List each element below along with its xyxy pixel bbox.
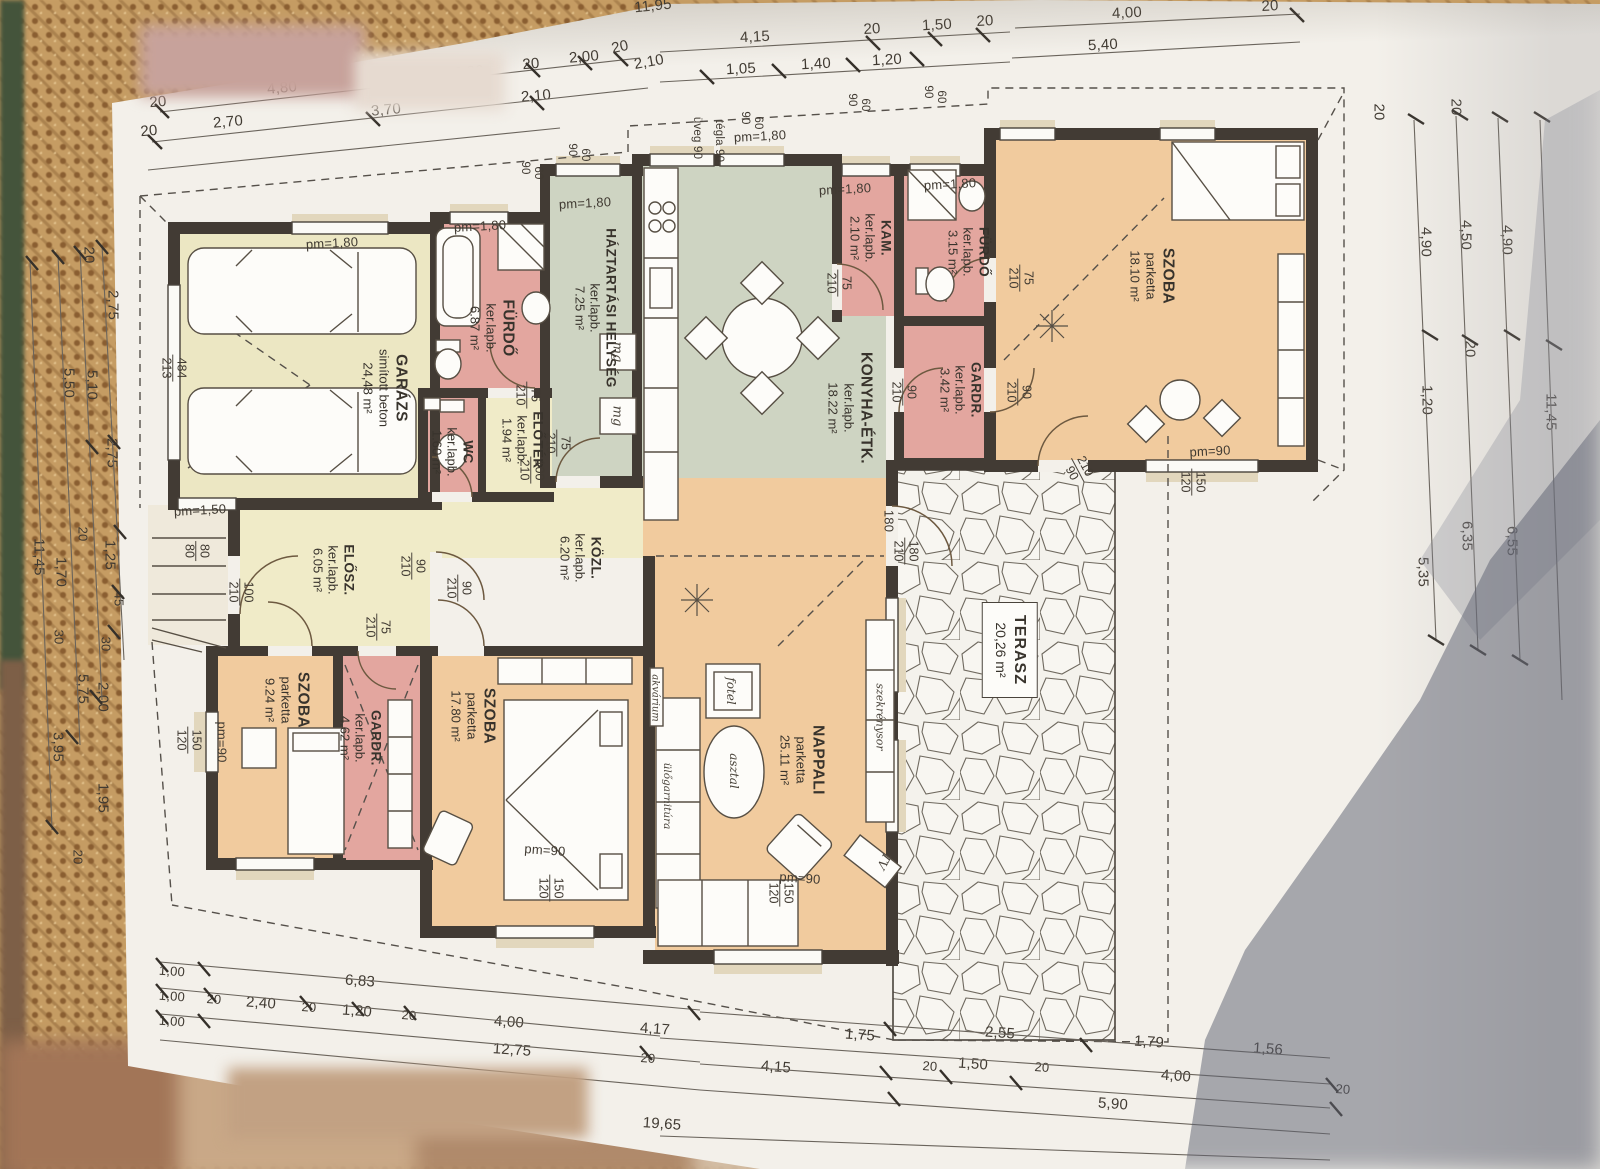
dim-label: 6,83 — [344, 971, 375, 990]
dim-label: 20 — [81, 246, 98, 263]
door-size-label: 75210 — [363, 614, 392, 641]
furniture-label-akvarium: akvárium — [650, 674, 661, 722]
dim-label: 1,50 — [957, 1054, 988, 1073]
dim-label: 20 — [863, 20, 881, 38]
dim-label: 4,90 — [1418, 227, 1435, 257]
dim-label: 2,00 — [95, 682, 112, 712]
dim-label: 11,45 — [1543, 393, 1560, 430]
dim-label: 30 — [52, 630, 67, 645]
redacted-area — [355, 52, 505, 110]
dim-label: 20 — [71, 850, 86, 865]
room-label-terasz: TERASZ 20,26 m² — [982, 602, 1038, 698]
redacted-area — [140, 25, 365, 97]
dim-label: 4,17 — [639, 1019, 670, 1038]
dim-label: 180 — [882, 510, 897, 532]
parapet-label: pm=90 — [1189, 442, 1231, 459]
dim-label: 1,56 — [1252, 1039, 1283, 1058]
dim-label: 2,70 — [212, 112, 243, 132]
dim-label: 1,50 — [922, 16, 953, 35]
door-size-label: 90210 — [889, 379, 918, 406]
dim-label: 1,00 — [158, 963, 185, 980]
door-size-label: 100210 — [517, 457, 546, 484]
dim-label: 20 — [922, 1058, 938, 1074]
door-size-label: 75210 — [543, 430, 572, 457]
dim-label: 11,45 — [31, 538, 48, 575]
dim-label: 4,15 — [740, 28, 771, 47]
window-size-label: 150120 — [766, 880, 795, 907]
sill-dim-label: 90 — [739, 111, 751, 124]
window-size-label: 150120 — [174, 727, 203, 754]
step-size-label: 8080 — [182, 541, 211, 561]
room-label-furdo2: FÜRDŐ ker.lapb. 3.15 m² — [945, 227, 992, 277]
window-size-label: 150120 — [1178, 469, 1207, 496]
door-size-label: 90210 — [444, 575, 473, 602]
appliance-label-mg: mg — [610, 406, 625, 427]
parapet-label: pm=1,50 — [173, 501, 226, 519]
wardrobe-icon — [498, 658, 632, 684]
sill-dim-label: 60 — [532, 166, 544, 179]
room-label-elosz: ELŐSZ. ker.lapb. 6.05 m² — [310, 544, 357, 595]
door-size-label: 90210 — [398, 553, 427, 580]
glazing-label: tégla 90 — [713, 120, 725, 163]
door-size-label: 90210 — [1004, 379, 1033, 406]
sill-dim-label: 90 — [519, 161, 531, 174]
sill-dim-label: 90 — [566, 143, 578, 156]
dim-label: 5,75 — [75, 674, 92, 704]
desk-icon — [242, 728, 276, 768]
door-size-label: 100210 — [226, 579, 255, 606]
furniture-label-ulogarnitura: ülőgarnitúra — [661, 763, 673, 830]
dim-label: 1,20 — [872, 51, 903, 70]
sill-dim-label: 90 — [922, 85, 934, 98]
room-label-garazs: GARÁZS simított beton 24,48 m² — [361, 349, 410, 427]
dim-label: 1,00 — [158, 988, 185, 1005]
dim-label: 2,40 — [245, 993, 276, 1012]
appliance-label-mg: mg — [610, 342, 625, 363]
sill-dim-label: 60 — [579, 148, 591, 161]
room-label-konyha: KONYHA-ÉTK. ker.lapb. 18.22 m² — [826, 352, 875, 464]
dim-label: 2,55 — [984, 1023, 1015, 1042]
parapet-label: pm=90 — [524, 841, 566, 859]
sill-dim-label: 60 — [859, 98, 871, 111]
dim-label: 12,75 — [492, 1040, 532, 1060]
dim-label: 20 — [1448, 98, 1465, 115]
dim-label: 4,00 — [1112, 4, 1143, 23]
parapet-label: pm=1,80 — [923, 175, 976, 193]
kitchen-counter — [644, 168, 678, 520]
dim-label: 20 — [522, 55, 541, 73]
dim-label: 5,40 — [1088, 36, 1119, 55]
room-label-szoba9: SZOBA parketta 9.24 m² — [263, 672, 312, 728]
sink-icon — [522, 292, 550, 324]
dim-label: 30 — [99, 637, 114, 652]
dim-label: 20 — [610, 37, 630, 57]
door-size-label: 75210 — [513, 382, 542, 409]
dim-label: 6,55 — [1504, 526, 1521, 556]
dim-label: 20 — [76, 527, 91, 542]
dim-label: 20 — [1261, 0, 1279, 15]
car-icon — [188, 248, 416, 334]
dim-label: 1,20 — [1419, 385, 1436, 415]
window-size-label: 150120 — [536, 875, 565, 902]
room-label-szoba17: SZOBA parketta 17.80 m² — [449, 688, 498, 744]
plant-icon — [1036, 310, 1068, 342]
dim-label: 20 — [1462, 340, 1479, 357]
dim-label: 2,75 — [105, 290, 122, 320]
door-size-label: 180210 — [891, 538, 920, 565]
bed-icon — [288, 728, 344, 854]
garage-door-size-label: 484213 — [159, 355, 188, 382]
furniture-label-fotel: fotel — [724, 677, 738, 704]
room-label-nappali: NAPPALI parketta 25.11 m² — [778, 725, 827, 795]
floorplan-photo: GARÁZS simított beton 24,48 m² FÜRDŐ ker… — [0, 0, 1600, 1169]
dim-label: 1,70 — [53, 557, 70, 587]
dim-label: 20 — [640, 1050, 656, 1066]
wardrobe-icon — [1278, 254, 1304, 446]
dim-label: 2,75 — [104, 438, 121, 468]
dim-label: 20 — [401, 1007, 417, 1023]
dim-label: 20 — [1335, 1081, 1351, 1097]
room-label-gardr3: GARDR. ker.lapb. 3.42 m² — [937, 362, 984, 418]
terrace-paving — [893, 470, 1115, 1040]
room-label-kozl: KÖZL. ker.lapb. 6.20 m² — [557, 533, 604, 582]
wardrobe-icon — [388, 700, 412, 848]
parapet-label: pm=1,80 — [453, 217, 506, 235]
dim-label: 1,05 — [726, 60, 757, 79]
parapet-label: pm=90 — [215, 721, 230, 762]
room-label-wc: WC ker.lapb. 1.60 m² — [429, 427, 476, 476]
room-label-hazt: HÁZTARTÁSI HELYSÉG ker.lapb. 7.25 m² — [572, 228, 619, 387]
dim-label: 5,90 — [1097, 1094, 1128, 1113]
dim-label: 1,75 — [844, 1025, 875, 1044]
room-label-gardr4: GARDR. ker.lapb. 4.62 m² — [337, 710, 384, 766]
dim-label: 45 — [112, 592, 127, 607]
dim-label: 4,00 — [1160, 1066, 1191, 1085]
door-size-label: 75210 — [824, 270, 853, 297]
dim-label: 6,35 — [1459, 521, 1476, 551]
dim-label: 2,00 — [568, 47, 599, 67]
dim-label: 3,95 — [50, 732, 67, 762]
glazing-label: üveg 90 — [691, 117, 703, 159]
dim-label: 1,00 — [158, 1013, 185, 1030]
furniture-label-asztal: asztal — [727, 753, 741, 788]
dim-label: 20 — [1034, 1059, 1050, 1075]
plant-icon — [681, 584, 713, 616]
sill-dim-label: 60 — [752, 116, 764, 129]
dim-label: 19,65 — [642, 1114, 682, 1134]
parapet-label: pm=1,80 — [818, 180, 871, 198]
room-label-kam: KAM. ker.lapb. 2.10 m² — [847, 213, 894, 262]
dim-label: 2,10 — [520, 86, 551, 106]
dim-label: 4,50 — [1458, 220, 1475, 250]
room-label-furdo1: FÜRDŐ ker.lapb. 6.87 m² — [468, 299, 517, 356]
dim-label: 5,35 — [1415, 557, 1432, 587]
sill-dim-label: 60 — [935, 90, 947, 103]
dim-label: 20 — [1371, 103, 1388, 120]
redacted-area — [228, 1068, 588, 1138]
dim-label: 1,40 — [801, 55, 832, 74]
dim-label: 1,25 — [102, 540, 119, 570]
dim-label: 4,90 — [1499, 225, 1516, 255]
parapet-label: pm=1,80 — [558, 194, 611, 212]
room-label-szoba18: SZOBA parketta 18.10 m² — [1128, 248, 1177, 304]
toilet-icon — [435, 340, 461, 379]
parapet-label: pm=1,80 — [733, 127, 786, 145]
dim-label: 5,10 — [84, 370, 101, 400]
dim-label: 1,20 — [341, 1001, 372, 1020]
dim-label: 1,79 — [1133, 1032, 1164, 1051]
double-bed-icon — [504, 700, 628, 900]
dim-label: 4,00 — [493, 1012, 524, 1031]
door-size-label: 75210 — [1006, 265, 1035, 292]
parapet-label: pm=1,80 — [305, 234, 358, 252]
sill-dim-label: 90 — [846, 93, 858, 106]
dim-label: 20 — [206, 991, 222, 1007]
dim-label: 20 — [976, 12, 994, 30]
dim-label: 4,15 — [760, 1057, 791, 1076]
dim-label: 1,95 — [95, 783, 112, 813]
dim-label: 20 — [140, 122, 159, 140]
furniture-label-szekrenysor: szekrénysor — [874, 683, 887, 750]
dim-label: 5,50 — [61, 368, 78, 398]
dim-label: 20 — [301, 999, 317, 1015]
bed-icon — [1172, 142, 1304, 220]
